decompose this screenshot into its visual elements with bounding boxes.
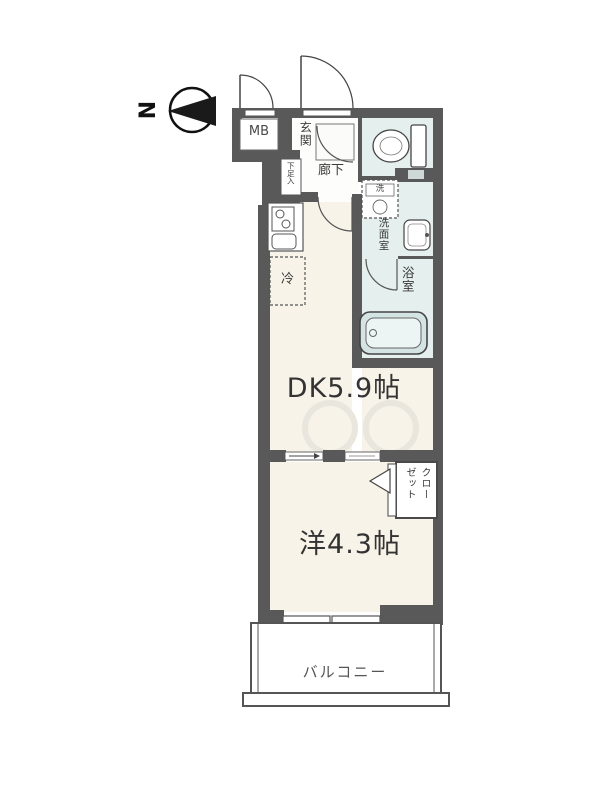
closet-label-col1: クロー bbox=[419, 467, 430, 500]
bathroom-label: 浴室 bbox=[400, 266, 414, 293]
toilet-tank-icon bbox=[411, 125, 426, 167]
wall-bath-divider bbox=[398, 256, 433, 259]
toilet-bowl-icon bbox=[373, 130, 409, 162]
wall-toilet-left bbox=[358, 118, 362, 178]
wall-dk-west-left bbox=[258, 450, 286, 462]
balcony-label: バルコニー bbox=[270, 664, 420, 681]
washbasin-faucet-icon bbox=[425, 233, 429, 237]
entrance-door-arc bbox=[301, 56, 353, 108]
mb-door-arc bbox=[240, 75, 273, 108]
washroom-label: 洗面室 bbox=[377, 217, 389, 252]
mb-door-threshold bbox=[245, 110, 275, 116]
western-room-label: 洋4.3帖 bbox=[275, 530, 425, 560]
stove-icon bbox=[272, 207, 294, 231]
refrigerator-label: 冷 bbox=[270, 273, 305, 287]
wall-mb-divider bbox=[278, 118, 292, 152]
entrance-threshold bbox=[303, 110, 351, 116]
entrance-label: 玄関 bbox=[298, 121, 311, 147]
washer-label: 洗 bbox=[366, 185, 394, 194]
pipe-space-marker bbox=[408, 170, 424, 179]
hallway-label: 廊下 bbox=[306, 164, 356, 178]
sink-icon bbox=[272, 234, 296, 249]
wall-bath-bottom bbox=[352, 358, 433, 368]
dining-kitchen-label: DK5.9帖 bbox=[269, 374, 419, 404]
closet-label-col2: ゼット bbox=[404, 467, 415, 500]
wall-dk-west-mid bbox=[323, 450, 345, 462]
compass-north-label: N bbox=[137, 101, 161, 119]
balcony-outline bbox=[251, 623, 441, 697]
bathtub-inner-icon bbox=[366, 318, 421, 348]
closet-box bbox=[396, 462, 437, 518]
balcony-railing bbox=[243, 693, 449, 706]
entrance-step bbox=[316, 124, 354, 160]
shoe-cabinet-label: 下足入 bbox=[286, 162, 294, 185]
wall-left-main bbox=[258, 205, 270, 625]
meter-box-label: MB bbox=[240, 125, 278, 139]
floor-plan: N MB 玄関 廊下 下足入 洗 洗面室 浴室 冷 DK5.9帖 洋4.3帖 ク… bbox=[0, 0, 600, 800]
wall-right bbox=[433, 108, 443, 625]
wall-dk-west-right bbox=[380, 450, 443, 462]
